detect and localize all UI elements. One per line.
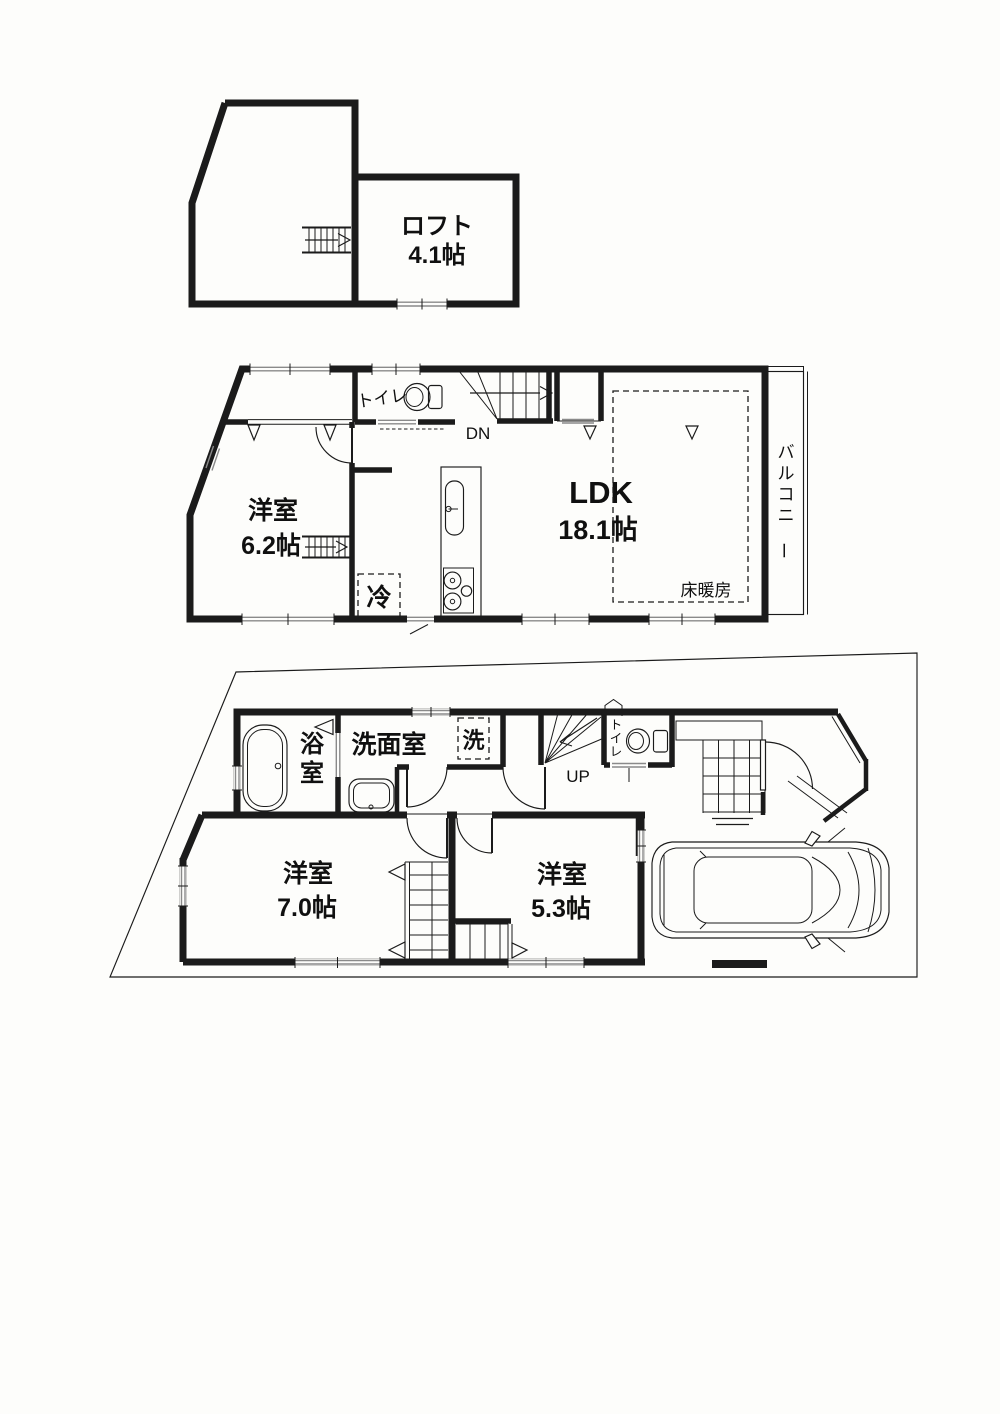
ldk-name: LDK <box>569 475 633 510</box>
balcony-label: バルコニー <box>774 443 795 559</box>
first-floor: 浴室 洗面室 洗 <box>110 653 917 977</box>
parking-block <box>712 960 767 968</box>
f2-bedroom-name: 洋室 <box>248 496 298 525</box>
loft-stairs-icon <box>302 227 351 253</box>
f2-hall-counter <box>557 420 698 440</box>
f2-stairs-dn: DN <box>459 369 552 443</box>
f1-stairs-up: UP <box>545 713 604 786</box>
f1-stairs-label: UP <box>566 767 590 786</box>
f2-closet-doors <box>248 420 352 440</box>
bedroom-b-size: 5.3帖 <box>531 895 591 923</box>
bedroom-b-door <box>457 818 492 853</box>
second-floor: バルコニー トイレ <box>190 364 808 635</box>
washer-box: 洗 <box>458 718 489 759</box>
ldk-size: 18.1帖 <box>558 515 638 545</box>
bedroom-a-door <box>407 818 447 858</box>
balcony: バルコニー <box>768 367 808 615</box>
floor-heating-label: 床暖房 <box>681 581 732 600</box>
closet-b <box>456 924 527 960</box>
f2-toilet-label: トイレ <box>355 386 408 412</box>
f1-toilet-room: トイレ <box>610 718 668 782</box>
loft-outline-walls <box>192 103 516 304</box>
floor-heating-area: 床暖房 <box>613 391 748 602</box>
f2-stairs-label: DN <box>466 424 491 443</box>
closet-a <box>389 862 448 962</box>
bathtub-icon <box>243 725 287 811</box>
bath-label: 浴室 <box>300 731 325 787</box>
toilet-icon-f1 <box>627 729 668 753</box>
washroom-label: 洗面室 <box>351 730 426 759</box>
hall-door <box>503 767 545 809</box>
f1-corner-walls <box>763 714 866 821</box>
loft-room-size: 4.1帖 <box>408 242 465 269</box>
washroom-door <box>407 767 447 807</box>
f2-bedroom-size: 6.2帖 <box>241 532 301 560</box>
f2-bedroom-door <box>316 427 352 463</box>
car-icon <box>652 828 889 952</box>
floor-plan-drawing: ロフト 4.1帖 バルコニー <box>0 0 1000 1414</box>
fridge: 冷 <box>358 574 400 618</box>
loft-room-name: ロフト <box>401 213 473 240</box>
f2-loft-ladder <box>302 536 352 558</box>
entrance-door <box>761 740 813 790</box>
f1-toilet-label: トイレ <box>610 718 623 759</box>
fridge-label: 冷 <box>366 583 391 612</box>
sink-icon <box>349 779 394 817</box>
bedroom-a-size: 7.0帖 <box>277 894 337 922</box>
loft-window <box>397 299 447 310</box>
washer-label: 洗 <box>462 728 484 753</box>
loft-floor: ロフト 4.1帖 <box>192 103 516 310</box>
floor-plan-page: ロフト 4.1帖 バルコニー <box>0 0 1000 1414</box>
bedroom-b-name: 洋室 <box>537 860 587 889</box>
kitchen-counter-icon <box>441 467 481 618</box>
f2-outer-walls <box>190 369 765 619</box>
bedroom-a-name: 洋室 <box>283 859 333 888</box>
toilet-icon-f2 <box>404 384 442 411</box>
